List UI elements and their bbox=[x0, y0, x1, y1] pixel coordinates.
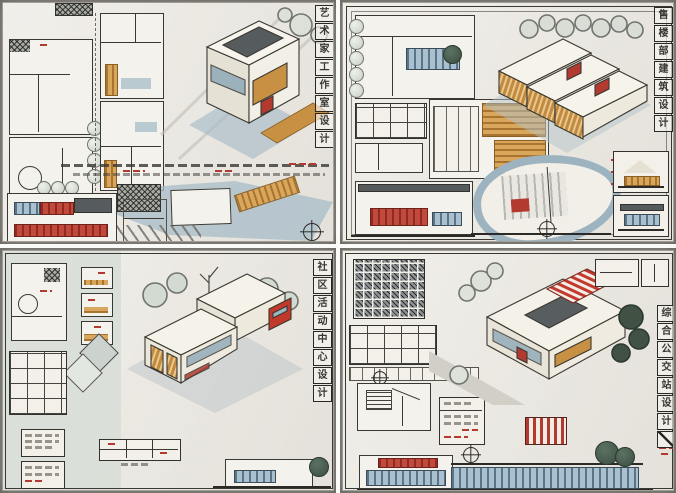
title-char: 计 bbox=[654, 115, 673, 132]
elevation-fragment bbox=[213, 455, 331, 489]
dark-tree-icon bbox=[629, 329, 649, 349]
plan-wall bbox=[392, 36, 393, 96]
red-annotation bbox=[215, 170, 233, 172]
title-char: 设 bbox=[657, 395, 674, 412]
title-char: 计 bbox=[315, 131, 334, 148]
title-char: 筑 bbox=[654, 79, 673, 96]
tree-icon bbox=[278, 8, 292, 22]
red-annotation bbox=[160, 452, 170, 454]
elevation-drawing bbox=[355, 181, 473, 235]
red-annotation bbox=[289, 163, 317, 165]
red-seal-mark bbox=[661, 453, 671, 455]
plan-wall bbox=[356, 36, 472, 37]
paper-bus-station: 综合公交站设计 bbox=[342, 250, 674, 491]
red-annotation bbox=[108, 443, 118, 445]
red-annotation bbox=[123, 170, 145, 172]
paper-community-center: 社区活动中心设计 bbox=[2, 250, 334, 491]
title-strip-community-center: 社区活动中心设计 bbox=[313, 259, 332, 402]
plan-wall bbox=[378, 144, 379, 170]
title-char: 售 bbox=[654, 7, 673, 24]
title-char: 部 bbox=[654, 43, 673, 60]
small-plan-box bbox=[595, 259, 639, 287]
plan-wall bbox=[12, 316, 62, 317]
plan-wall bbox=[10, 74, 70, 75]
plan-wall bbox=[402, 396, 403, 426]
red-annotation bbox=[25, 480, 45, 482]
axonometric-drawing-community-center bbox=[119, 257, 315, 415]
axonometric-drawing-sales-center bbox=[471, 13, 671, 153]
handwritten-note-line bbox=[73, 173, 325, 176]
title-char: 作 bbox=[315, 77, 334, 94]
road-band bbox=[429, 351, 525, 405]
handwritten-note-line bbox=[25, 440, 59, 443]
plan-wall bbox=[38, 74, 39, 132]
table-divider bbox=[440, 410, 482, 411]
section-floor-line bbox=[124, 218, 164, 219]
ground-line bbox=[357, 489, 653, 491]
wood-facade-panel bbox=[167, 353, 177, 379]
wall-hatch-block bbox=[44, 268, 60, 282]
ground-line bbox=[351, 235, 475, 237]
gable-roof-sketch bbox=[624, 160, 656, 173]
elevation-red-storefront bbox=[370, 208, 428, 226]
north-arrow-icon bbox=[539, 221, 555, 237]
tree-icon bbox=[290, 14, 312, 36]
tree-icon bbox=[349, 83, 364, 98]
title-char: 工 bbox=[315, 59, 334, 76]
elevation-drawing bbox=[357, 451, 653, 491]
elevation-glazing bbox=[14, 202, 40, 215]
tree-icon bbox=[443, 45, 462, 64]
photo-collage-architecture-boards: 艺术家工作室设计 bbox=[0, 0, 676, 493]
title-empty-slash-box bbox=[657, 431, 674, 448]
floor-plan-rooms bbox=[9, 351, 67, 415]
title-char: 建 bbox=[654, 61, 673, 78]
wood-facade-band bbox=[624, 176, 660, 186]
table-row-line bbox=[25, 466, 59, 469]
design-notes-block bbox=[21, 429, 65, 457]
ground-line bbox=[618, 186, 664, 188]
paper-sales-center: 售楼部建筑设计 bbox=[342, 2, 674, 242]
floor-plan-main bbox=[11, 263, 67, 341]
board-bus-station: 综合公交站设计 bbox=[340, 248, 676, 493]
title-char: 交 bbox=[657, 359, 674, 376]
title-char: 社 bbox=[313, 259, 332, 276]
plan-wall bbox=[600, 272, 632, 273]
title-char: 设 bbox=[313, 367, 332, 384]
title-char: 心 bbox=[313, 349, 332, 366]
wood-floor-area bbox=[84, 307, 108, 313]
elevation-outline bbox=[225, 459, 313, 487]
floor-plan-small bbox=[355, 143, 423, 173]
title-char: 设 bbox=[315, 113, 334, 130]
elevation-dark-volume bbox=[74, 198, 112, 213]
board-grid: 艺术家工作室设计 bbox=[0, 0, 676, 493]
elevation-glazing bbox=[624, 214, 660, 226]
glass-curtain-wall bbox=[451, 467, 639, 489]
floor-plan-level2 bbox=[357, 383, 431, 431]
title-char: 综 bbox=[657, 305, 674, 322]
title-char: 公 bbox=[657, 341, 674, 358]
small-plan-box bbox=[641, 259, 669, 287]
red-annotation bbox=[88, 299, 97, 301]
title-strip-bus-station: 综合公交站设计 bbox=[657, 305, 674, 448]
elevation-left-block bbox=[359, 455, 453, 489]
title-char: 室 bbox=[315, 95, 334, 112]
site-plan-footprint bbox=[170, 188, 231, 226]
spiral-stair-symbol bbox=[18, 294, 38, 314]
axonometric-drawing-artist-studio bbox=[161, 7, 334, 163]
elevation-glazing bbox=[366, 470, 446, 486]
canopy-roof-line bbox=[451, 463, 643, 465]
red-striped-section bbox=[525, 417, 567, 445]
elevation-glazing bbox=[432, 212, 462, 226]
tree-icon bbox=[349, 35, 364, 50]
title-strip-artist-studio: 艺术家工作室设计 bbox=[315, 5, 334, 148]
paper-artist-studio: 艺术家工作室设计 bbox=[2, 2, 334, 242]
floor-plan-unit-a bbox=[100, 13, 164, 99]
title-char: 艺 bbox=[315, 5, 334, 22]
board-sales-center: 售楼部建筑设计 bbox=[340, 0, 676, 244]
interior-vignette-box bbox=[81, 293, 113, 317]
interior-vignette-box bbox=[81, 267, 113, 289]
tree-icon bbox=[615, 447, 635, 467]
tree-icon bbox=[349, 19, 364, 34]
red-annotation bbox=[94, 326, 102, 328]
table-row-line bbox=[444, 415, 478, 418]
title-char: 设 bbox=[654, 97, 673, 114]
stair-symbol bbox=[366, 390, 392, 410]
drawing-label bbox=[121, 463, 151, 466]
north-arrow-icon bbox=[303, 223, 321, 241]
tree-icon bbox=[349, 67, 364, 82]
title-char: 区 bbox=[313, 277, 332, 294]
red-sign-band bbox=[378, 458, 438, 468]
indicator-table bbox=[21, 461, 65, 489]
title-char: 家 bbox=[315, 41, 334, 58]
title-char: 楼 bbox=[654, 25, 673, 42]
floor-plan-level1 bbox=[9, 39, 93, 135]
red-annotation bbox=[444, 436, 468, 438]
red-annotation bbox=[98, 272, 106, 274]
ground-line bbox=[213, 486, 331, 488]
plan-annotation-red bbox=[40, 44, 50, 46]
handwritten-note-line bbox=[25, 434, 59, 437]
title-strip-sales-center: 售楼部建筑设计 bbox=[654, 7, 673, 132]
dark-tree-icon bbox=[619, 305, 643, 329]
plan-wall bbox=[101, 42, 161, 43]
red-annotation bbox=[462, 429, 478, 431]
ground-line bbox=[5, 241, 119, 242]
pool-blue-area bbox=[121, 78, 151, 89]
floor-plan-rooms bbox=[349, 325, 437, 365]
board-artist-studio: 艺术家工作室设计 bbox=[0, 0, 336, 244]
dark-tree-icon bbox=[612, 344, 630, 362]
elevation-glazing bbox=[234, 470, 276, 483]
interior-red-accent bbox=[511, 198, 530, 212]
section-floor-line bbox=[100, 449, 178, 450]
title-char: 站 bbox=[657, 377, 674, 394]
title-char: 活 bbox=[313, 295, 332, 312]
title-char: 合 bbox=[657, 323, 674, 340]
wood-floor-area bbox=[84, 280, 108, 285]
red-annotation bbox=[40, 290, 52, 292]
plan-wall bbox=[131, 146, 132, 188]
table-row-line bbox=[25, 473, 59, 476]
wall-hatch-block bbox=[10, 40, 30, 52]
elevation-red-louvers bbox=[40, 202, 74, 215]
title-char: 计 bbox=[313, 385, 332, 402]
plan-wall bbox=[135, 14, 136, 42]
table-row-line bbox=[444, 422, 478, 425]
section-drawing bbox=[123, 199, 167, 242]
elevation-red-louvers bbox=[14, 224, 108, 237]
title-char: 术 bbox=[315, 23, 334, 40]
title-char: 动 bbox=[313, 313, 332, 330]
tree-icon bbox=[309, 457, 329, 477]
interior-perspective-glazing bbox=[501, 172, 568, 220]
tree-icon bbox=[349, 51, 364, 66]
floor-plan-rooms bbox=[355, 103, 427, 139]
title-char: 计 bbox=[657, 413, 674, 430]
small-elevation-box bbox=[613, 151, 669, 193]
stair-direction-line bbox=[392, 388, 420, 400]
elevation-drawing bbox=[7, 193, 117, 242]
site-analysis-grid bbox=[353, 259, 425, 319]
handwritten-note-line bbox=[25, 446, 53, 449]
ground-line bbox=[618, 229, 664, 231]
wood-floor-area bbox=[105, 64, 118, 96]
board-community-center: 社区活动中心设计 bbox=[0, 248, 336, 493]
floor-plan-unit-b bbox=[100, 101, 164, 191]
small-elevation-box bbox=[613, 195, 669, 237]
elevation-roof-band bbox=[358, 184, 470, 192]
section-drawing bbox=[99, 439, 181, 461]
plan-wall bbox=[654, 264, 655, 282]
elevation-roof-band bbox=[620, 204, 664, 211]
title-char: 中 bbox=[313, 331, 332, 348]
wall-hatch-block bbox=[55, 3, 93, 16]
furniture-blue-area bbox=[135, 122, 157, 132]
